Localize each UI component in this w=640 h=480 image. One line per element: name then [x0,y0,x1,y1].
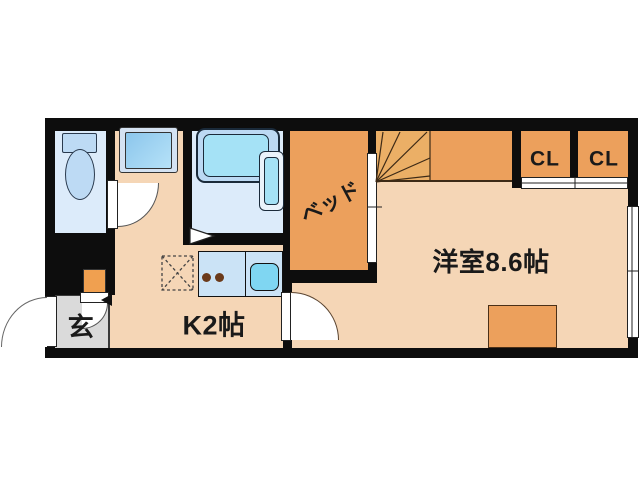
wall-bathroom-bottom [183,233,283,245]
toilet-door-leaf [107,180,118,229]
bed-sliding-door [367,153,377,263]
staircase-fan [376,131,430,182]
closet1-label: CL [530,149,560,170]
kitchen-sink [250,263,279,291]
kitchen-door-leaf [281,292,291,341]
stove-burner-right [215,273,224,282]
wall-bed-bottom [283,270,377,283]
stove-burner-left [202,273,211,282]
entry-door-swing [1,297,47,347]
floor-plan: 玄 K2帖 洋室8.6帖 ベッド CL CL [0,0,640,480]
kitchen-label: K2帖 [182,313,245,340]
bath-heater-inner [264,157,279,205]
wall-closet-divider [570,131,578,180]
closet-sliding-doors [521,177,628,189]
closet2-label: CL [589,149,619,170]
vanity-sink-basin [125,132,172,169]
entrance-label: 玄 [68,314,95,340]
shoe-cabinet [83,269,106,293]
wall-kitchen-door-stub [283,341,292,348]
staircase-landing [430,131,512,182]
toilet-bowl [65,149,95,200]
wall-washroom-bathroom [183,131,192,245]
wall-stairs-closet [512,131,521,188]
main-room-label: 洋室8.6帖 [432,249,549,275]
storage-box [488,305,557,348]
entrance-inner-door-leaf [80,292,109,303]
window-right-wall [627,206,639,338]
